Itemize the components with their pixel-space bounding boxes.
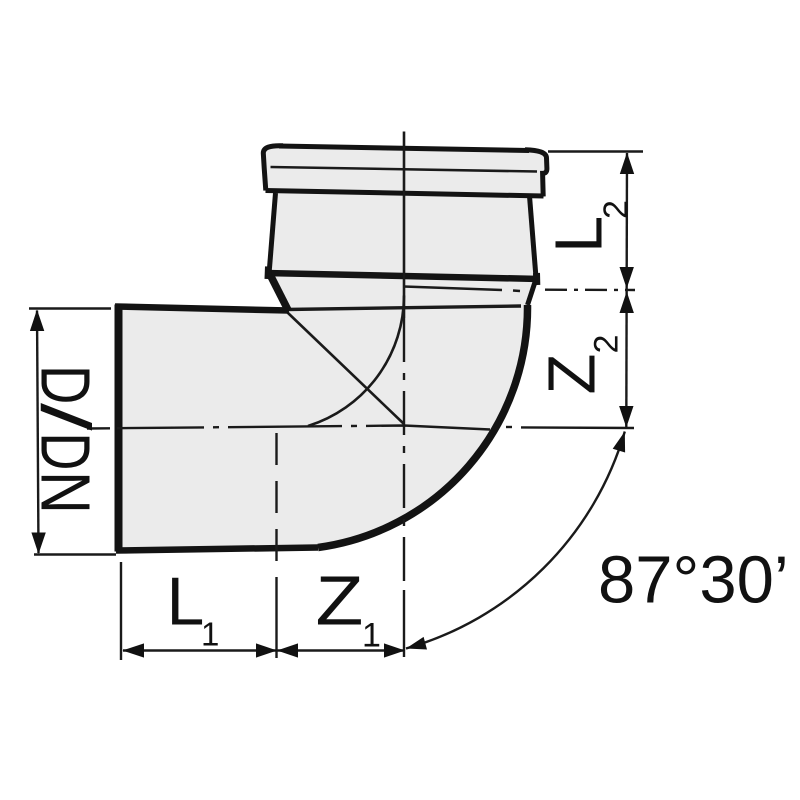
svg-text:L: L [167,564,205,640]
svg-text:Z: Z [316,561,364,639]
svg-text:1: 1 [362,617,381,655]
svg-text:D: D [26,365,104,404]
svg-text:1: 1 [201,616,219,653]
svg-text:Z: Z [535,354,610,395]
svg-text:/: / [26,403,104,431]
svg-text:2: 2 [588,335,626,354]
svg-text:2: 2 [597,200,635,219]
svg-text:87°30’: 87°30’ [598,543,789,618]
svg-text:L: L [542,216,617,253]
svg-text:D: D [26,433,104,471]
svg-text:N: N [26,471,105,514]
